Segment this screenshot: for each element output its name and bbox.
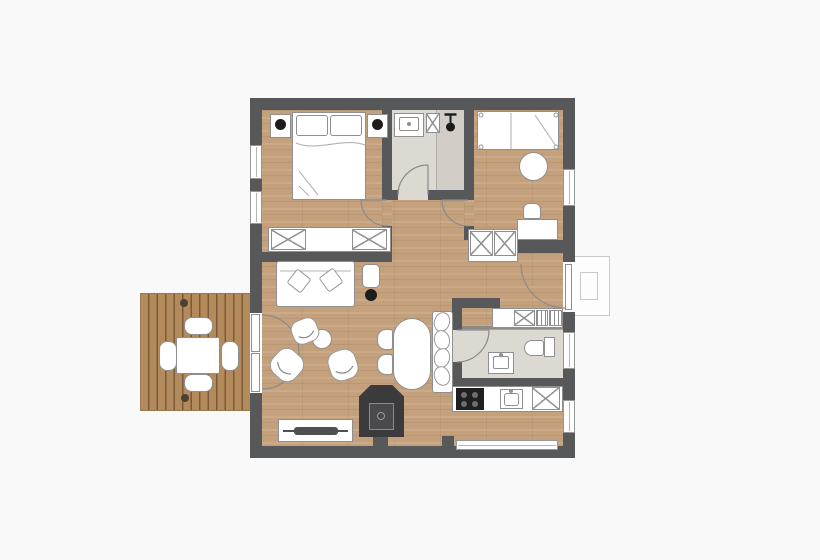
burner-1 <box>461 392 467 398</box>
outdoor-chair-west <box>159 341 177 371</box>
deck-door-leaf-lower <box>251 353 260 392</box>
desk <box>517 219 558 240</box>
deck-post-north <box>180 299 188 307</box>
outdoor-chair-south <box>184 374 213 392</box>
wall-bathroom2-bottom <box>452 378 563 386</box>
bathroom1-cabinet <box>426 113 440 133</box>
bedroom-wardrobe-door-right <box>352 229 387 250</box>
bathroom2-faucet <box>499 353 503 357</box>
dining-bench <box>432 311 453 393</box>
burner-4 <box>472 401 478 407</box>
bedroom2-window <box>563 169 575 206</box>
burner-2 <box>472 392 478 398</box>
toilet-bowl <box>524 340 544 356</box>
dining-table <box>393 318 431 390</box>
bedroom-door-opening <box>382 200 392 226</box>
pillow-left <box>296 115 328 136</box>
outdoor-chair-north <box>184 317 213 335</box>
bedroom2-round-rug <box>519 152 548 181</box>
bathroom2-window <box>563 332 575 369</box>
bathroom1-washbasin-drain <box>407 122 411 126</box>
entrance-door-leaf <box>565 264 572 310</box>
bathroom2-washbasin-bowl <box>493 356 509 369</box>
deck-door-leaf-upper <box>251 314 260 352</box>
wall-bath-bottom-b <box>428 190 474 200</box>
dining-chair-1 <box>377 329 393 350</box>
bedroom-window-1 <box>250 145 262 179</box>
sofa-side-table <box>362 264 380 288</box>
entrance-porch-step <box>580 272 598 300</box>
hall-wardrobe-door-right <box>494 231 516 256</box>
floor-lamp <box>365 289 377 301</box>
wall-bath-bedroom2 <box>464 110 474 200</box>
bedroom2-door-opening <box>464 200 474 226</box>
kitchen-window-bottom <box>456 440 558 450</box>
pillow-right <box>330 115 362 136</box>
single-bed <box>477 111 559 150</box>
burner-3 <box>461 401 467 407</box>
wood-stove-handle <box>377 412 385 420</box>
sofa <box>276 261 355 307</box>
wall-bedroom2-bottom <box>514 240 563 253</box>
outdoor-chair-east <box>221 341 239 371</box>
outdoor-table <box>176 337 220 374</box>
bedroom-wardrobe-door-left <box>271 229 306 250</box>
dryer-2 <box>549 310 562 326</box>
kitchen-faucet <box>509 389 513 393</box>
kitchen-sink-bowl <box>504 393 519 406</box>
wall-bath-bottom-a <box>382 190 398 200</box>
hall-wardrobe-door-left <box>470 231 493 256</box>
toilet-tank <box>544 337 555 357</box>
bedside-lamp-right <box>372 119 383 130</box>
round-coffee-table <box>312 329 332 349</box>
bathroom1-door-opening <box>398 190 428 200</box>
bathroom2-door-opening <box>452 330 462 362</box>
desk-chair <box>523 203 541 219</box>
dryer-1 <box>536 310 548 326</box>
bedside-lamp-left <box>275 119 286 130</box>
cooktop <box>456 388 484 410</box>
wall-outer-top <box>250 98 575 110</box>
washer <box>514 310 535 326</box>
kitchen-window-right <box>563 400 575 433</box>
dining-chair-2 <box>377 354 393 375</box>
wall-hall-vertical-upper <box>452 298 462 330</box>
bedroom-window-2 <box>250 191 262 224</box>
floor-plan-canvas <box>0 0 820 560</box>
soundbar <box>294 427 338 435</box>
deck-post-south <box>181 394 189 402</box>
refrigerator <box>532 387 560 410</box>
wall-bottom-notch <box>442 436 454 446</box>
